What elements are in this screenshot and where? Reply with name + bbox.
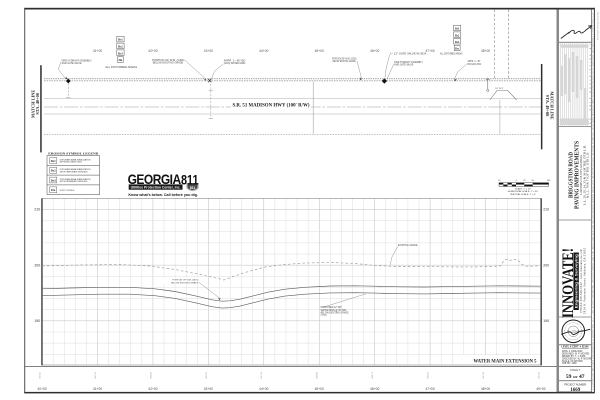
svg-text:18″ RCP: 18″ RCP [495, 88, 504, 90]
svg-text:VERTICAL SCALE: 1″ = 5′: VERTICAL SCALE: 1″ = 5′ [510, 193, 536, 196]
svg-text:(WITH PERMANENT SEEDING): (WITH PERMANENT SEEDING) [60, 180, 88, 183]
svg-text:ALL DISTURBED AREAS: ALL DISTURBED AREAS [105, 65, 137, 69]
svg-text:41+00: 41+00 [93, 387, 102, 391]
svg-text:(GDS) WATER MAIN: (GDS) WATER MAIN [224, 62, 246, 65]
svg-text:47+00: 47+00 [425, 387, 434, 391]
svg-text:Ds2: Ds2 [118, 45, 123, 49]
svg-text:BD (GDS) W.M.: BD (GDS) W.M. [468, 63, 482, 66]
svg-text:STA. 40+00: STA. 40+00 [35, 92, 40, 114]
svg-text:41+00: 41+00 [93, 49, 102, 53]
svg-text:SHEET: SHEET [570, 369, 580, 372]
svg-text:BELOW EXISTING GRADE: BELOW EXISTING GRADE [321, 311, 349, 314]
svg-text:Du: Du [51, 188, 55, 192]
svg-text:40+00: 40+00 [37, 387, 46, 391]
svg-text:286.88: 286.88 [317, 371, 319, 378]
svg-text:Ds3: Ds3 [51, 178, 57, 182]
svg-text:210: 210 [34, 208, 40, 212]
svg-text:BELOW EXISTING GRADE: BELOW EXISTING GRADE [153, 60, 184, 64]
svg-text:© COPYRIGHT INNOVATE ENGINEERI: © COPYRIGHT INNOVATE ENGINEERING & SURVE… [592, 12, 595, 390]
svg-text:42+00: 42+00 [148, 387, 157, 391]
svg-text:STA. 49+00: STA. 49+00 [545, 95, 550, 117]
svg-text:LEVEL II CERT. # 32145: LEVEL II CERT. # 32145 [562, 346, 590, 349]
svg-text:210: 210 [543, 208, 549, 212]
svg-text:JOB NO: 1669: JOB NO: 1669 [562, 363, 577, 365]
svg-text:Ds2: Ds2 [51, 169, 57, 173]
svg-text:48+00: 48+00 [481, 49, 490, 53]
svg-text:287.91: 287.91 [95, 371, 97, 378]
svg-text:44+00: 44+00 [259, 387, 268, 391]
svg-text:WATER MAIN EXTENSION 5: WATER MAIN EXTENSION 5 [474, 358, 537, 364]
svg-text:(TYP.): (TYP.) [321, 315, 327, 317]
svg-text:46+00: 46+00 [370, 387, 379, 391]
svg-text:287.18: 287.18 [483, 371, 485, 378]
svg-text:Ds2: Ds2 [455, 34, 460, 37]
svg-text:PLOTTED: 6/4/2024 10:32 AM: PLOTTED: 6/4/2024 10:32 AM [597, 12, 600, 40]
svg-text:& L.L. 70 & 71 OF THE 11TH L.D: & L.L. 70 & 71 OF THE 11TH L.D. [586, 152, 590, 198]
svg-text:BELOW EXISTING GRADE: BELOW EXISTING GRADE [171, 281, 199, 284]
svg-text:47+00: 47+00 [425, 49, 434, 53]
svg-text:Ds1: Ds1 [51, 159, 57, 163]
svg-text:AND GATE VALVE: AND GATE VALVE [62, 61, 82, 65]
svg-text:1– 12″ GATE VALVE W/ BOX: 1– 12″ GATE VALVE W/ BOX [390, 52, 427, 55]
svg-text:44+00: 44+00 [259, 49, 268, 53]
svg-text:45+00: 45+00 [315, 49, 324, 53]
svg-text:Utilities Protection Center, I: Utilities Protection Center, Inc. [131, 185, 181, 189]
svg-text:Know what's below. Call before: Know what's below. Call before you dig. [128, 193, 198, 197]
svg-text:1669: 1669 [570, 388, 581, 393]
svg-text:190: 190 [543, 319, 549, 323]
svg-text:BELOW EXISTING GRADE: BELOW EXISTING GRADE [333, 60, 356, 63]
svg-text:EROSION SYMBOL LEGEND: EROSION SYMBOL LEGEND [48, 152, 99, 156]
svg-text:Ds3: Ds3 [455, 41, 460, 44]
svg-text:286.71: 286.71 [372, 371, 374, 378]
svg-text:287.02: 287.02 [538, 371, 540, 378]
svg-text:EXISTING GRADE: EXISTING GRADE [398, 244, 418, 247]
svg-text:AND GATE VALVE: AND GATE VALVE [394, 64, 413, 67]
svg-text:200: 200 [34, 263, 40, 267]
svg-text:200: 200 [543, 263, 549, 267]
svg-text:Du: Du [118, 58, 122, 62]
svg-text:PH/FAX 229-549-0112 · www.inno: PH/FAX 229-549-0112 · www.innovate-es.co… [580, 249, 583, 313]
svg-text:49+00: 49+00 [536, 387, 545, 391]
svg-text:45+00: 45+00 [315, 387, 324, 391]
svg-text:HORIZONTAL SCALE: 1″ = 50′: HORIZONTAL SCALE: 1″ = 50′ [508, 190, 539, 193]
svg-text:811: 811 [181, 172, 199, 187]
svg-text:46+00: 46+00 [370, 49, 379, 53]
svg-text:43+00: 43+00 [204, 387, 213, 391]
svg-text:SCALE: 1″ = 50′: SCALE: 1″ = 50′ [515, 187, 531, 190]
svg-text:(WITH MULCHING ONLY): (WITH MULCHING ONLY) [60, 162, 83, 164]
svg-text:ALL DISTURBED AREAS: ALL DISTURBED AREAS [440, 52, 463, 55]
svg-text:287.12: 287.12 [261, 371, 263, 378]
svg-text:S.R. 51 MADISON HWY (100′ R/W): S.R. 51 MADISON HWY (100′ R/W) [233, 104, 310, 109]
svg-text:PROJECT NUMBER: PROJECT NUMBER [564, 384, 586, 387]
svg-text:287.64: 287.64 [39, 371, 41, 378]
svg-text:(WITH TEMPORARY SEEDING): (WITH TEMPORARY SEEDING) [60, 171, 88, 174]
svg-text:Ds3: Ds3 [118, 51, 123, 55]
svg-text:PORTION OF W.M. (GDS): PORTION OF W.M. (GDS) [172, 280, 198, 282]
svg-text:WATER MAIN @ 36″ MIN.: WATER MAIN @ 36″ MIN. [321, 309, 348, 312]
svg-text:286.95: 286.95 [427, 371, 429, 378]
svg-text:2814 N. Patterson Street, Vald: 2814 N. Patterson Street, Valdosta, GA 3… [584, 247, 587, 314]
svg-text:288.02: 288.02 [150, 371, 152, 378]
svg-text:Ds1: Ds1 [118, 38, 123, 42]
svg-text:Engineering & Surveying: Engineering & Surveying [575, 254, 579, 308]
svg-text:Ds1: Ds1 [455, 27, 460, 30]
svg-text:190: 190 [34, 319, 40, 323]
svg-text:48+00: 48+00 [481, 387, 490, 391]
svg-text:43+00: 43+00 [204, 49, 213, 53]
svg-text:287.55: 287.55 [206, 371, 208, 378]
svg-text:42+00: 42+00 [148, 49, 157, 53]
svg-text:Du: Du [455, 48, 459, 51]
svg-text:DUST CONTROL: DUST CONTROL [60, 190, 75, 192]
